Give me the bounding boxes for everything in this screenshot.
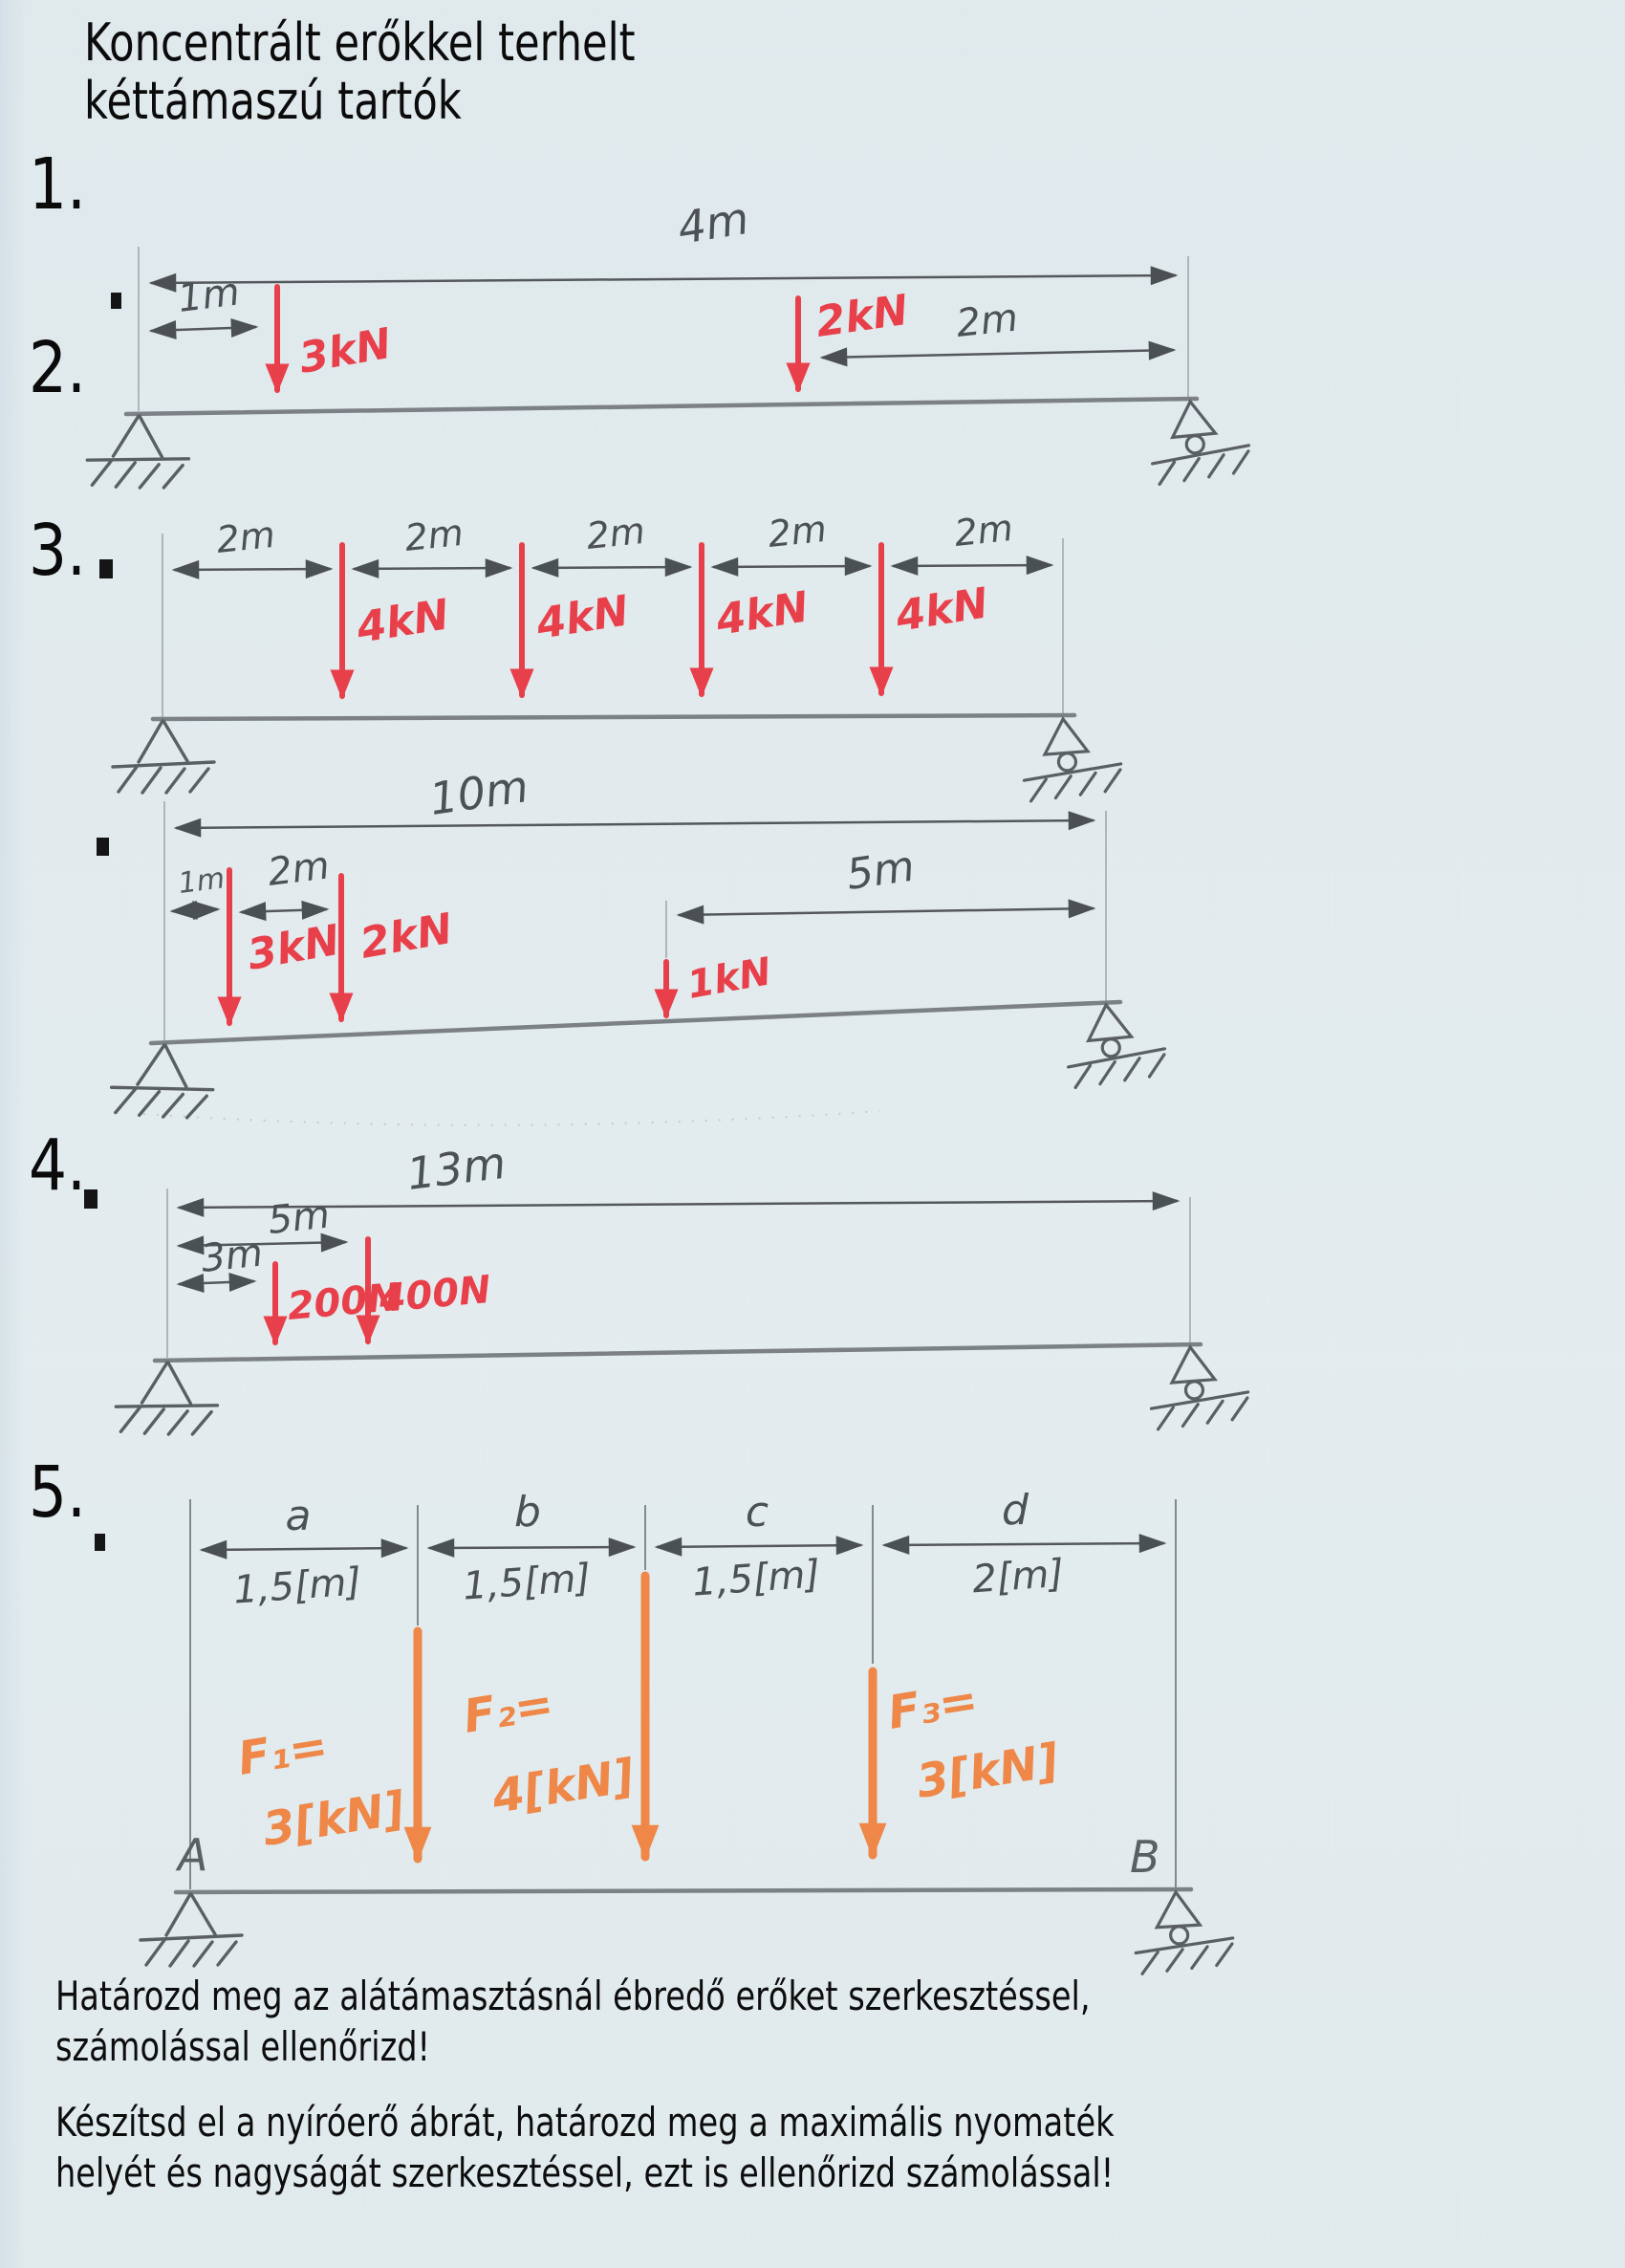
force-label: 4kN [532,586,632,649]
roller-support-icon [1064,1001,1167,1088]
dim-label: 2m [766,508,828,556]
dim-label-total: 13m [404,1137,509,1200]
dimension-line [354,568,510,569]
dim-label-total: 4m [674,192,752,254]
force-label: 4kN [353,590,452,653]
dim-label: 5m [266,1192,332,1242]
dimension-line [172,909,218,911]
force-label: 400N [377,1268,493,1321]
span-dim-label: 2[m] [971,1552,1066,1603]
instructions-block: Határozd meg az alátámasztásnál ébredő e… [55,1972,1625,2199]
instruction-line: helyét és nagyságát szerkesztéssel, ezt … [55,2148,1114,2199]
pinned-support-icon [113,721,214,793]
beam-line [153,715,1074,719]
instruction-line: számolással ellenőrizd! [55,2022,430,2073]
dim-label: 3m [199,1231,265,1280]
dim-label: 2m [952,507,1014,555]
roller-support-icon [1148,1344,1249,1429]
beam-1-diagram: 4m 1m 2m 3kN 2kN [86,192,1251,490]
force-label: 4kN [712,582,812,645]
dimension-line [713,566,870,567]
dim-label: 1m [176,270,243,321]
dimension-line-total [176,820,1094,828]
force-label: 3kN [244,916,343,980]
dim-label: 2m [584,510,646,557]
dim-label: 2m [954,295,1020,345]
pinned-support-icon [141,1894,242,1966]
dimension-line [679,908,1094,915]
dimension-line [822,350,1174,358]
force-name-label: F₃= [884,1673,982,1740]
span-dim-label: 1,5[m] [462,1556,593,1608]
force-label: 3kN [295,319,395,383]
span-dim-label: 1,5[m] [232,1559,363,1612]
force-label: 2kN [812,286,911,347]
roller-support-icon [1148,398,1251,485]
span-letter: a [286,1492,312,1540]
force-value-label: 3[kN] [259,1781,408,1857]
dimension-line [893,565,1051,566]
worksheet-drawing: 4m 1m 2m 3kN 2kN 2m 2m 2m 2m 2m [0,0,1625,2268]
beam-line [176,1889,1191,1892]
instruction-line: Határozd meg az alátámasztásnál ébredő e… [55,1972,1091,2022]
span-letter: c [746,1488,769,1537]
beam-5-diagram: a b c d 1,5[m] 1,5[m] 1,5[m] 2[m] F₁= 3[… [141,1486,1234,1974]
dim-label: 1m [177,861,227,901]
dimension-line [241,909,327,912]
pinned-support-icon [86,414,190,490]
roller-support-icon [1021,716,1122,801]
force-label: 4kN [892,578,991,642]
support-letter-B: B [1130,1831,1160,1883]
beam-4-diagram: 13m 5m 3m 200N 400N [115,1137,1249,1436]
dim-label: 2m [402,512,465,559]
force-value-label: 4[kN] [487,1749,638,1824]
beam-line [126,399,1197,414]
beam-line [155,1344,1201,1361]
pinned-support-icon [115,1361,219,1436]
dim-label: 2m [266,843,333,895]
dimension-line [174,569,331,570]
force-name-label: F₂= [460,1677,557,1744]
support-letter-A: A [175,1829,207,1881]
worksheet-page: Koncentrált erőkkel terhelt kéttámaszú t… [0,0,1625,2268]
dimension-line [429,1547,634,1548]
beam-line [151,1002,1120,1043]
dimension-line [533,567,690,568]
span-letter: d [1002,1486,1029,1535]
force-label: 1kN [684,949,775,1008]
dimension-line [657,1545,861,1547]
beam-2-diagram: 2m 2m 2m 2m 2m 4kN 4kN 4kN 4kN [113,507,1122,801]
dim-label: 2m [214,513,276,561]
dimension-line [179,1281,254,1284]
pinned-support-icon [110,1041,216,1120]
span-letter: b [514,1488,541,1537]
dimension-line-total [151,275,1176,283]
eraser-smudge [143,1111,879,1125]
dimension-line [151,327,256,331]
force-value-label: 3[kN] [913,1734,1062,1809]
roller-support-icon [1134,1890,1234,1974]
dimension-line [884,1543,1164,1545]
dimension-line [202,1548,406,1550]
beam-3-diagram: 10m 1m 2m 5m 3kN 2kN 1kN [110,760,1167,1121]
force-name-label: F₁= [234,1719,332,1786]
instruction-line: Készítsd el a nyíróerő ábrát, határozd m… [55,2098,1115,2148]
dim-label-total: 10m [426,760,531,825]
force-label: 2kN [357,905,456,969]
span-dim-label: 1,5[m] [691,1552,822,1604]
dim-label: 5m [843,842,917,900]
scan-artifact [84,293,121,1551]
